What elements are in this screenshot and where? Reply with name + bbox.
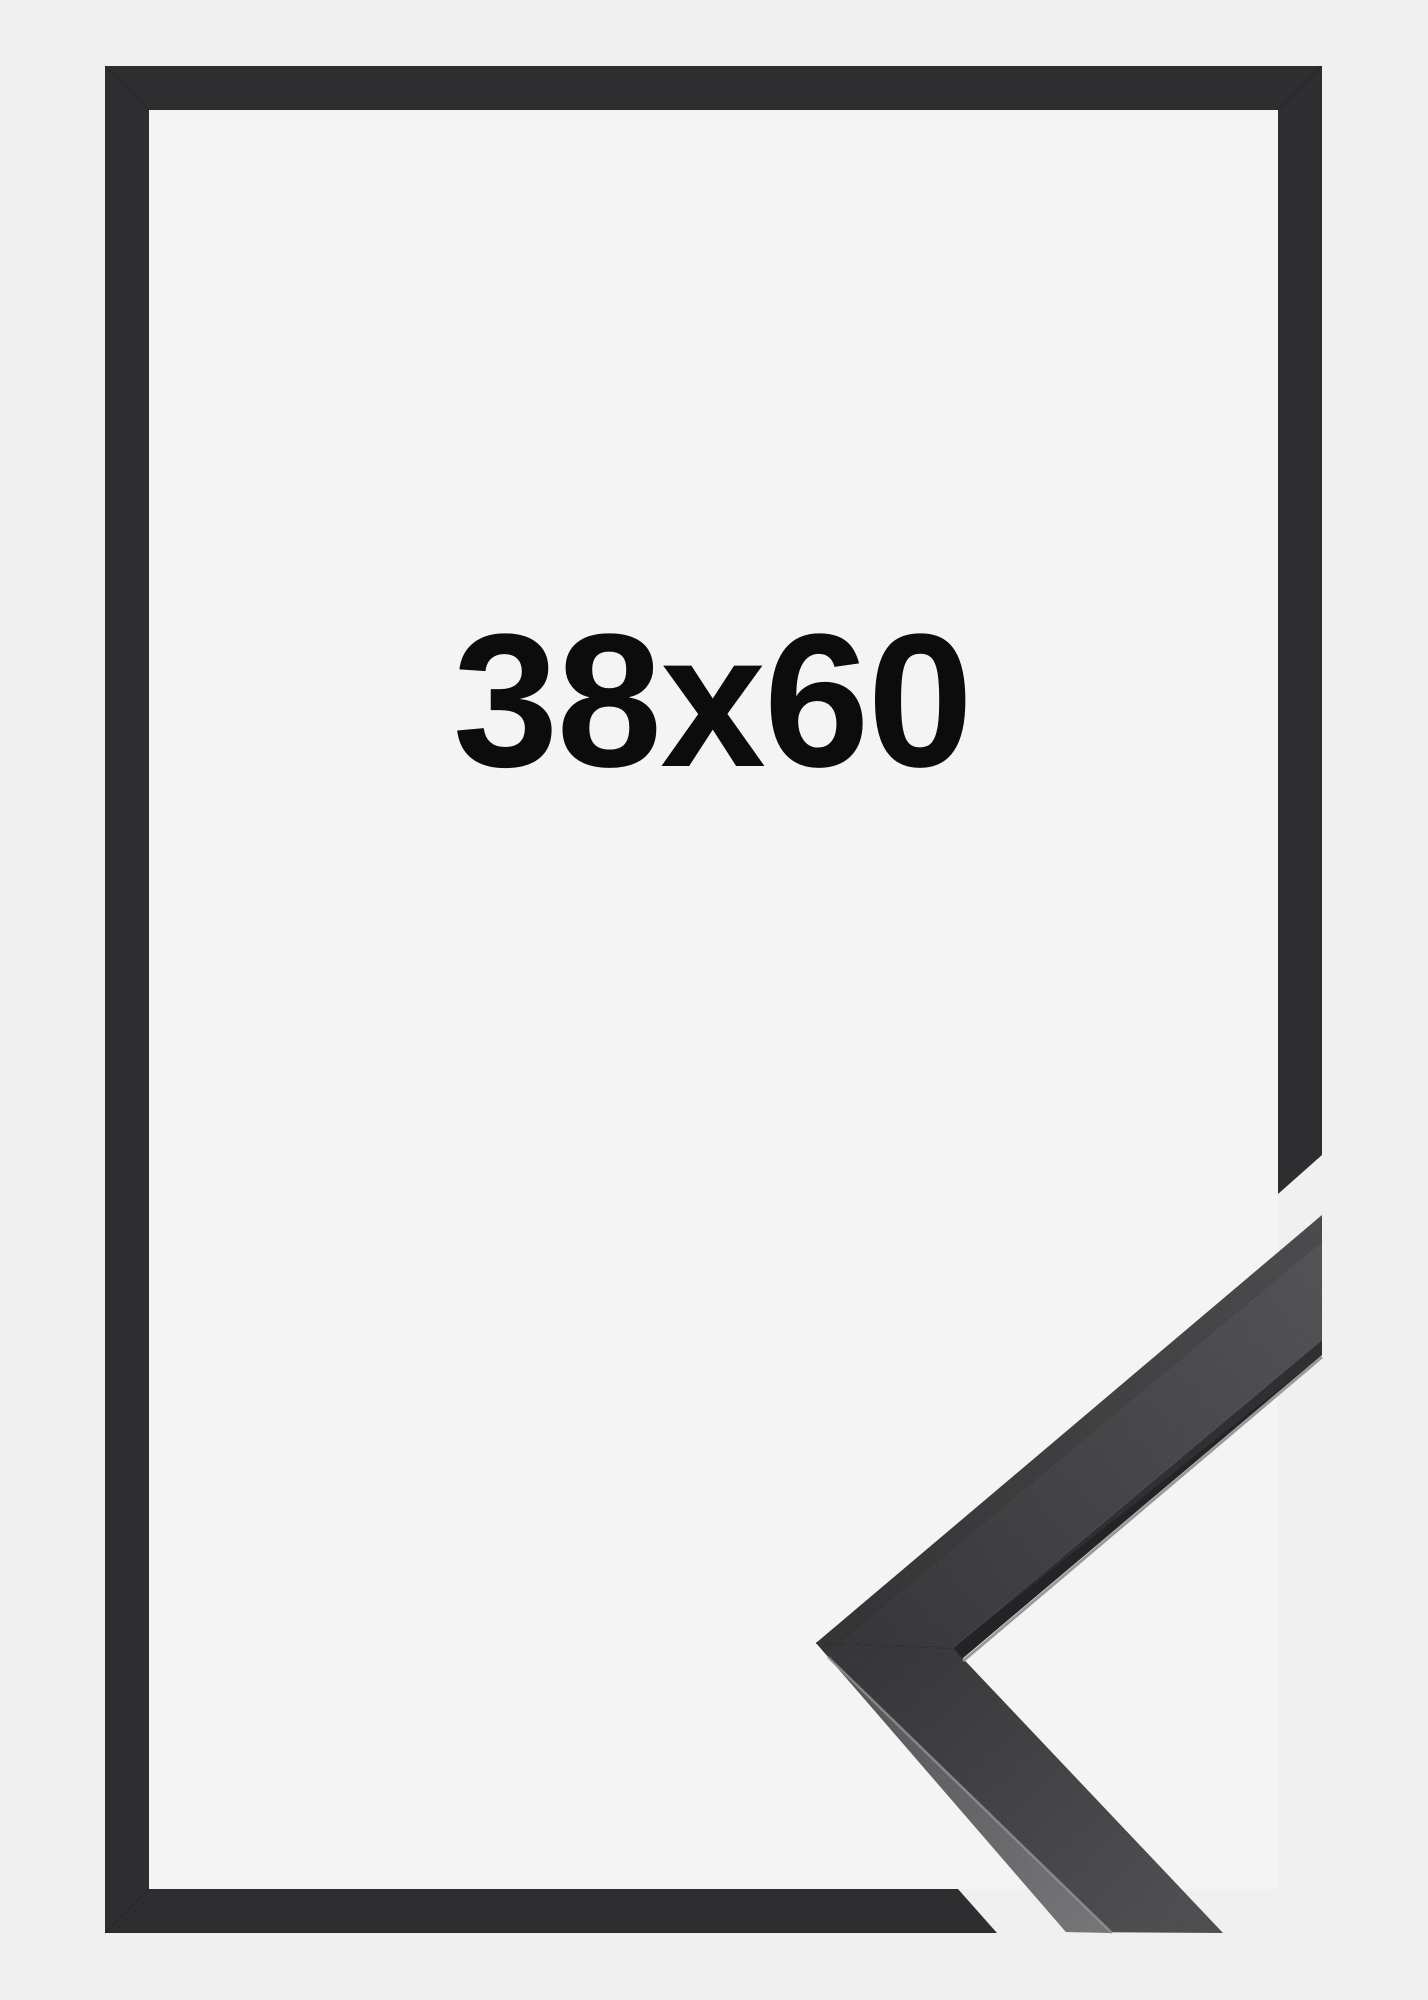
product-image: 38x60: [0, 0, 1428, 2000]
frame-left-bar: [105, 66, 149, 1933]
size-label: 38x60: [0, 606, 1424, 796]
frame-bottom-bar: [105, 1889, 997, 1933]
frame-interior: [149, 110, 1278, 1889]
frame-graphic: [0, 0, 1428, 2000]
frame-top-bar: [105, 66, 1322, 110]
